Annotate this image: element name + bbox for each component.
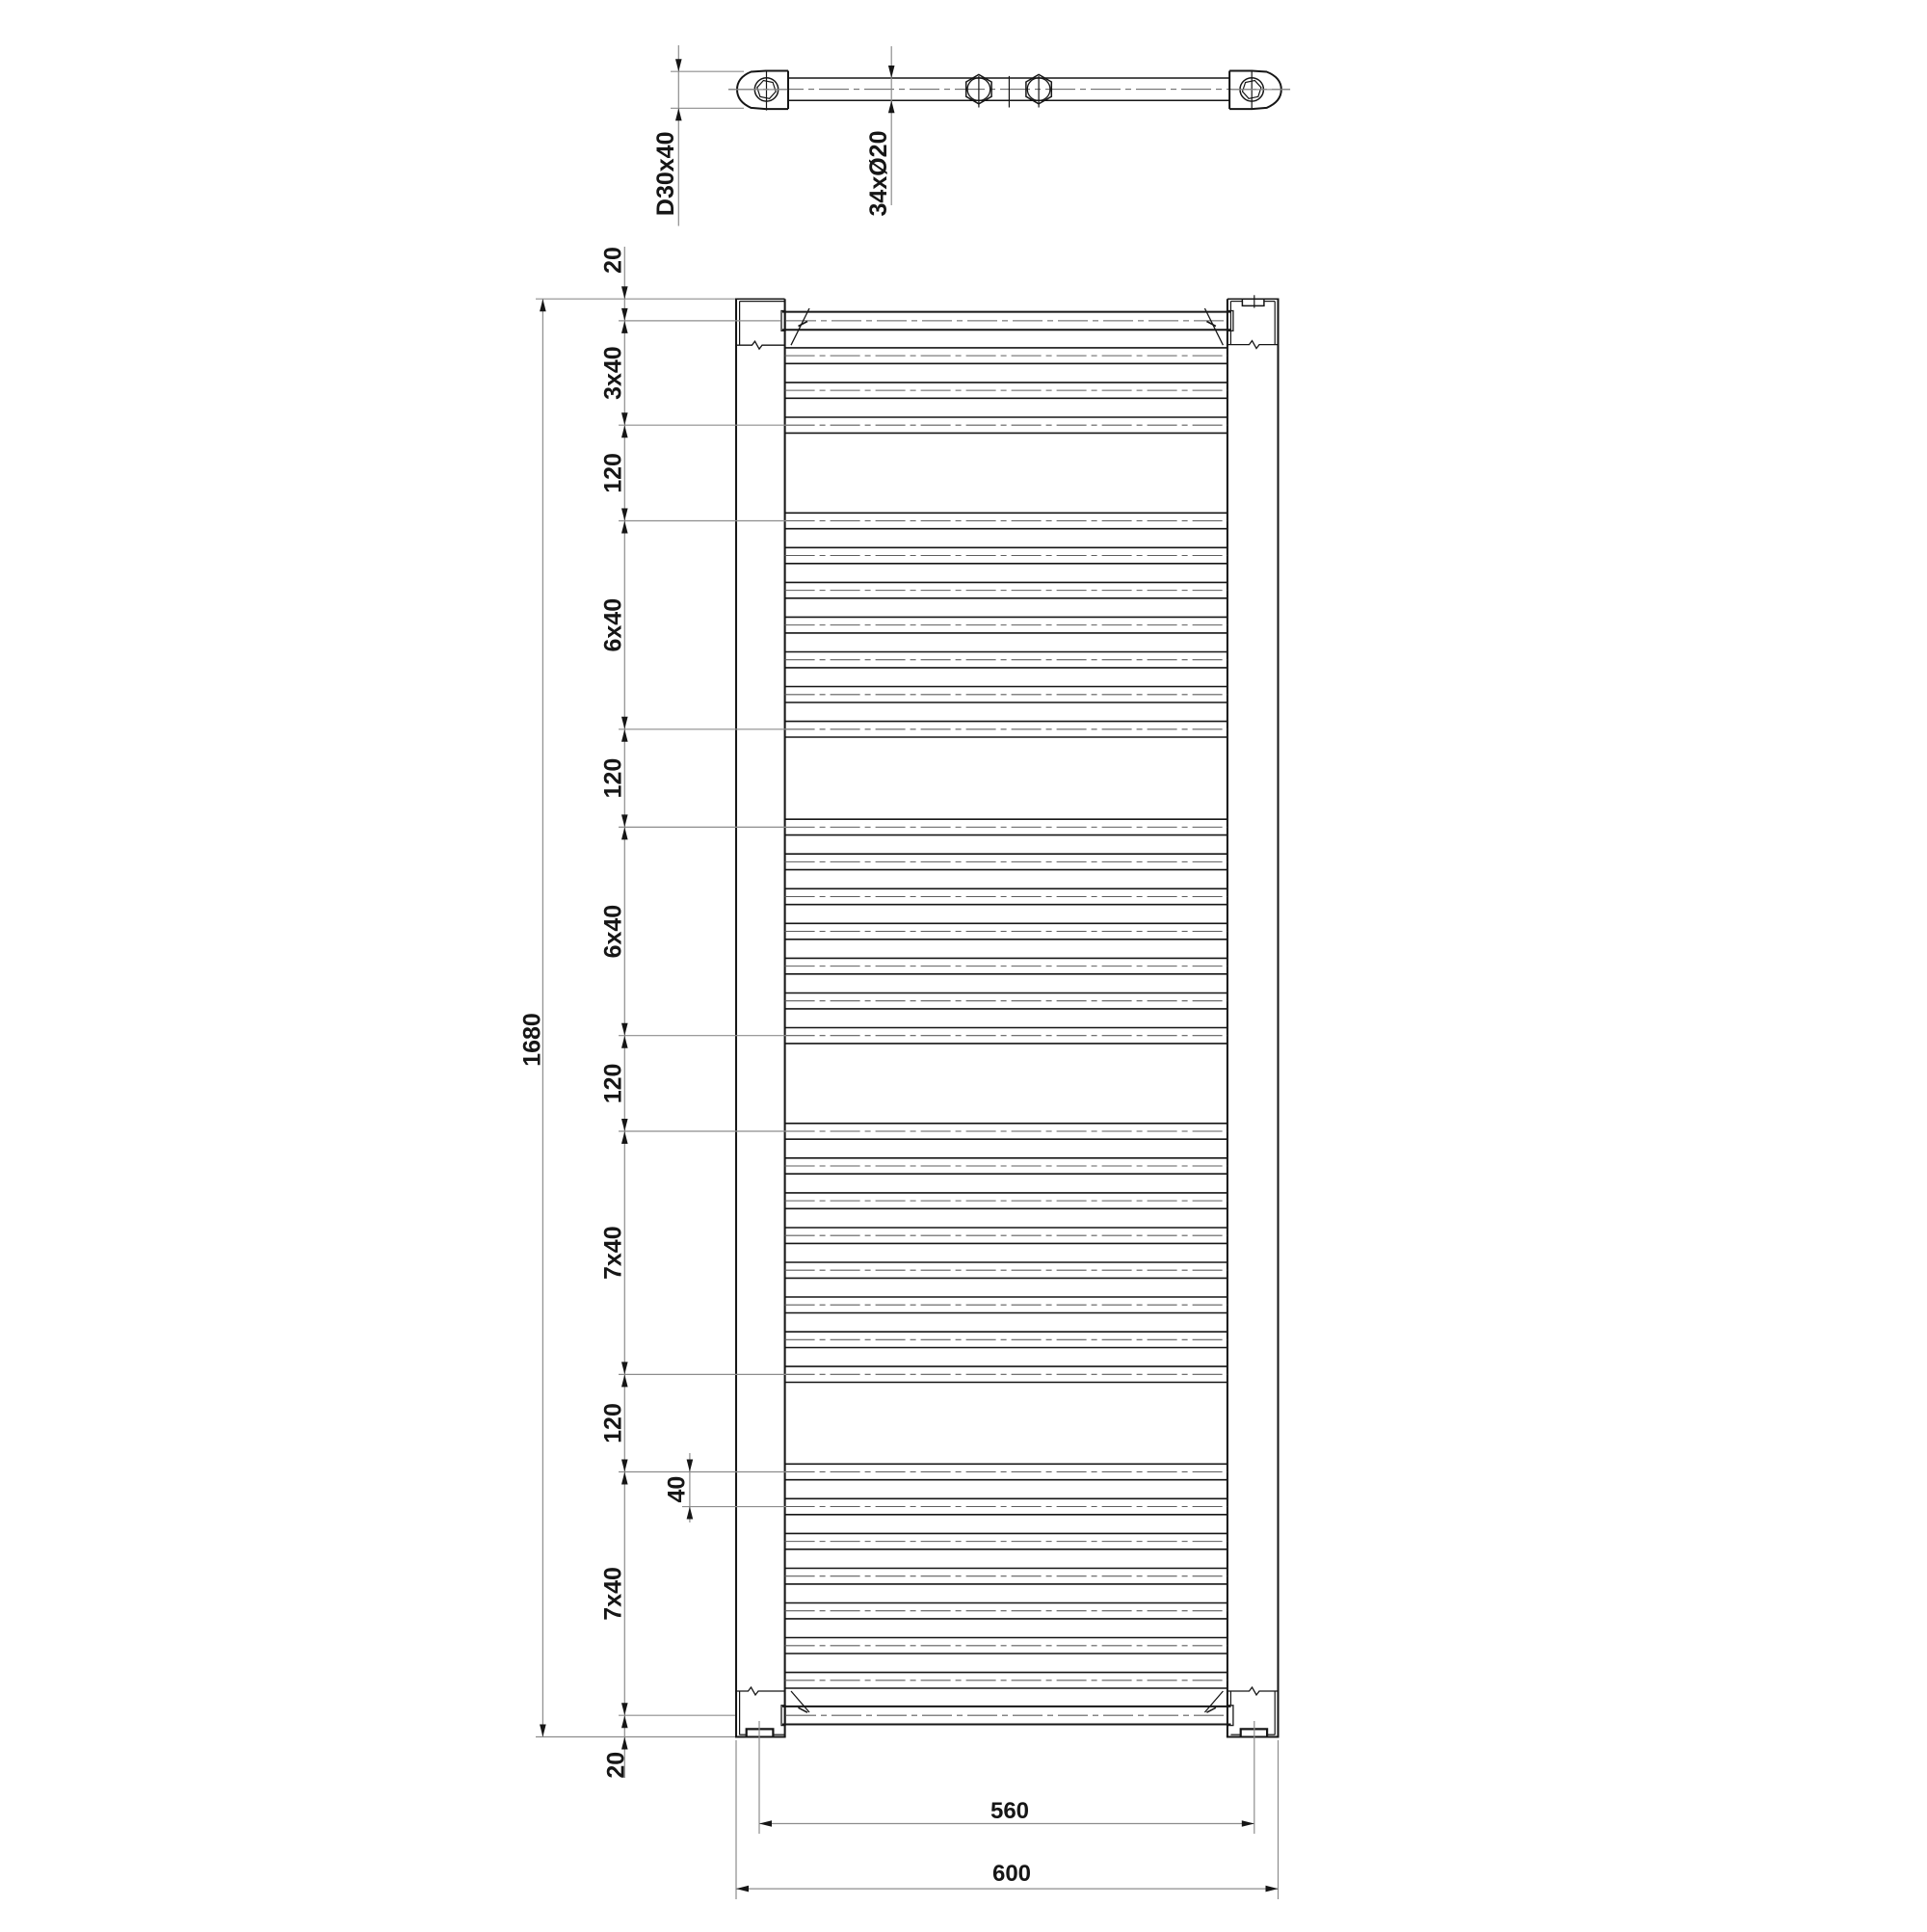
svg-text:40: 40 <box>663 1476 690 1503</box>
svg-text:D30x40: D30x40 <box>652 132 679 217</box>
svg-text:6x40: 6x40 <box>600 598 627 652</box>
svg-text:1680: 1680 <box>519 1013 546 1067</box>
svg-text:7x40: 7x40 <box>600 1226 627 1280</box>
svg-text:120: 120 <box>600 453 627 493</box>
svg-text:120: 120 <box>600 758 627 799</box>
svg-text:7x40: 7x40 <box>600 1567 627 1621</box>
svg-text:560: 560 <box>990 1798 1029 1824</box>
svg-text:120: 120 <box>600 1064 627 1104</box>
svg-text:600: 600 <box>992 1861 1031 1887</box>
svg-text:3x40: 3x40 <box>600 346 627 400</box>
svg-text:6x40: 6x40 <box>600 905 627 959</box>
svg-text:120: 120 <box>600 1403 627 1443</box>
svg-text:20: 20 <box>603 1752 630 1779</box>
svg-text:20: 20 <box>600 247 627 274</box>
svg-text:34xØ20: 34xØ20 <box>865 131 892 217</box>
